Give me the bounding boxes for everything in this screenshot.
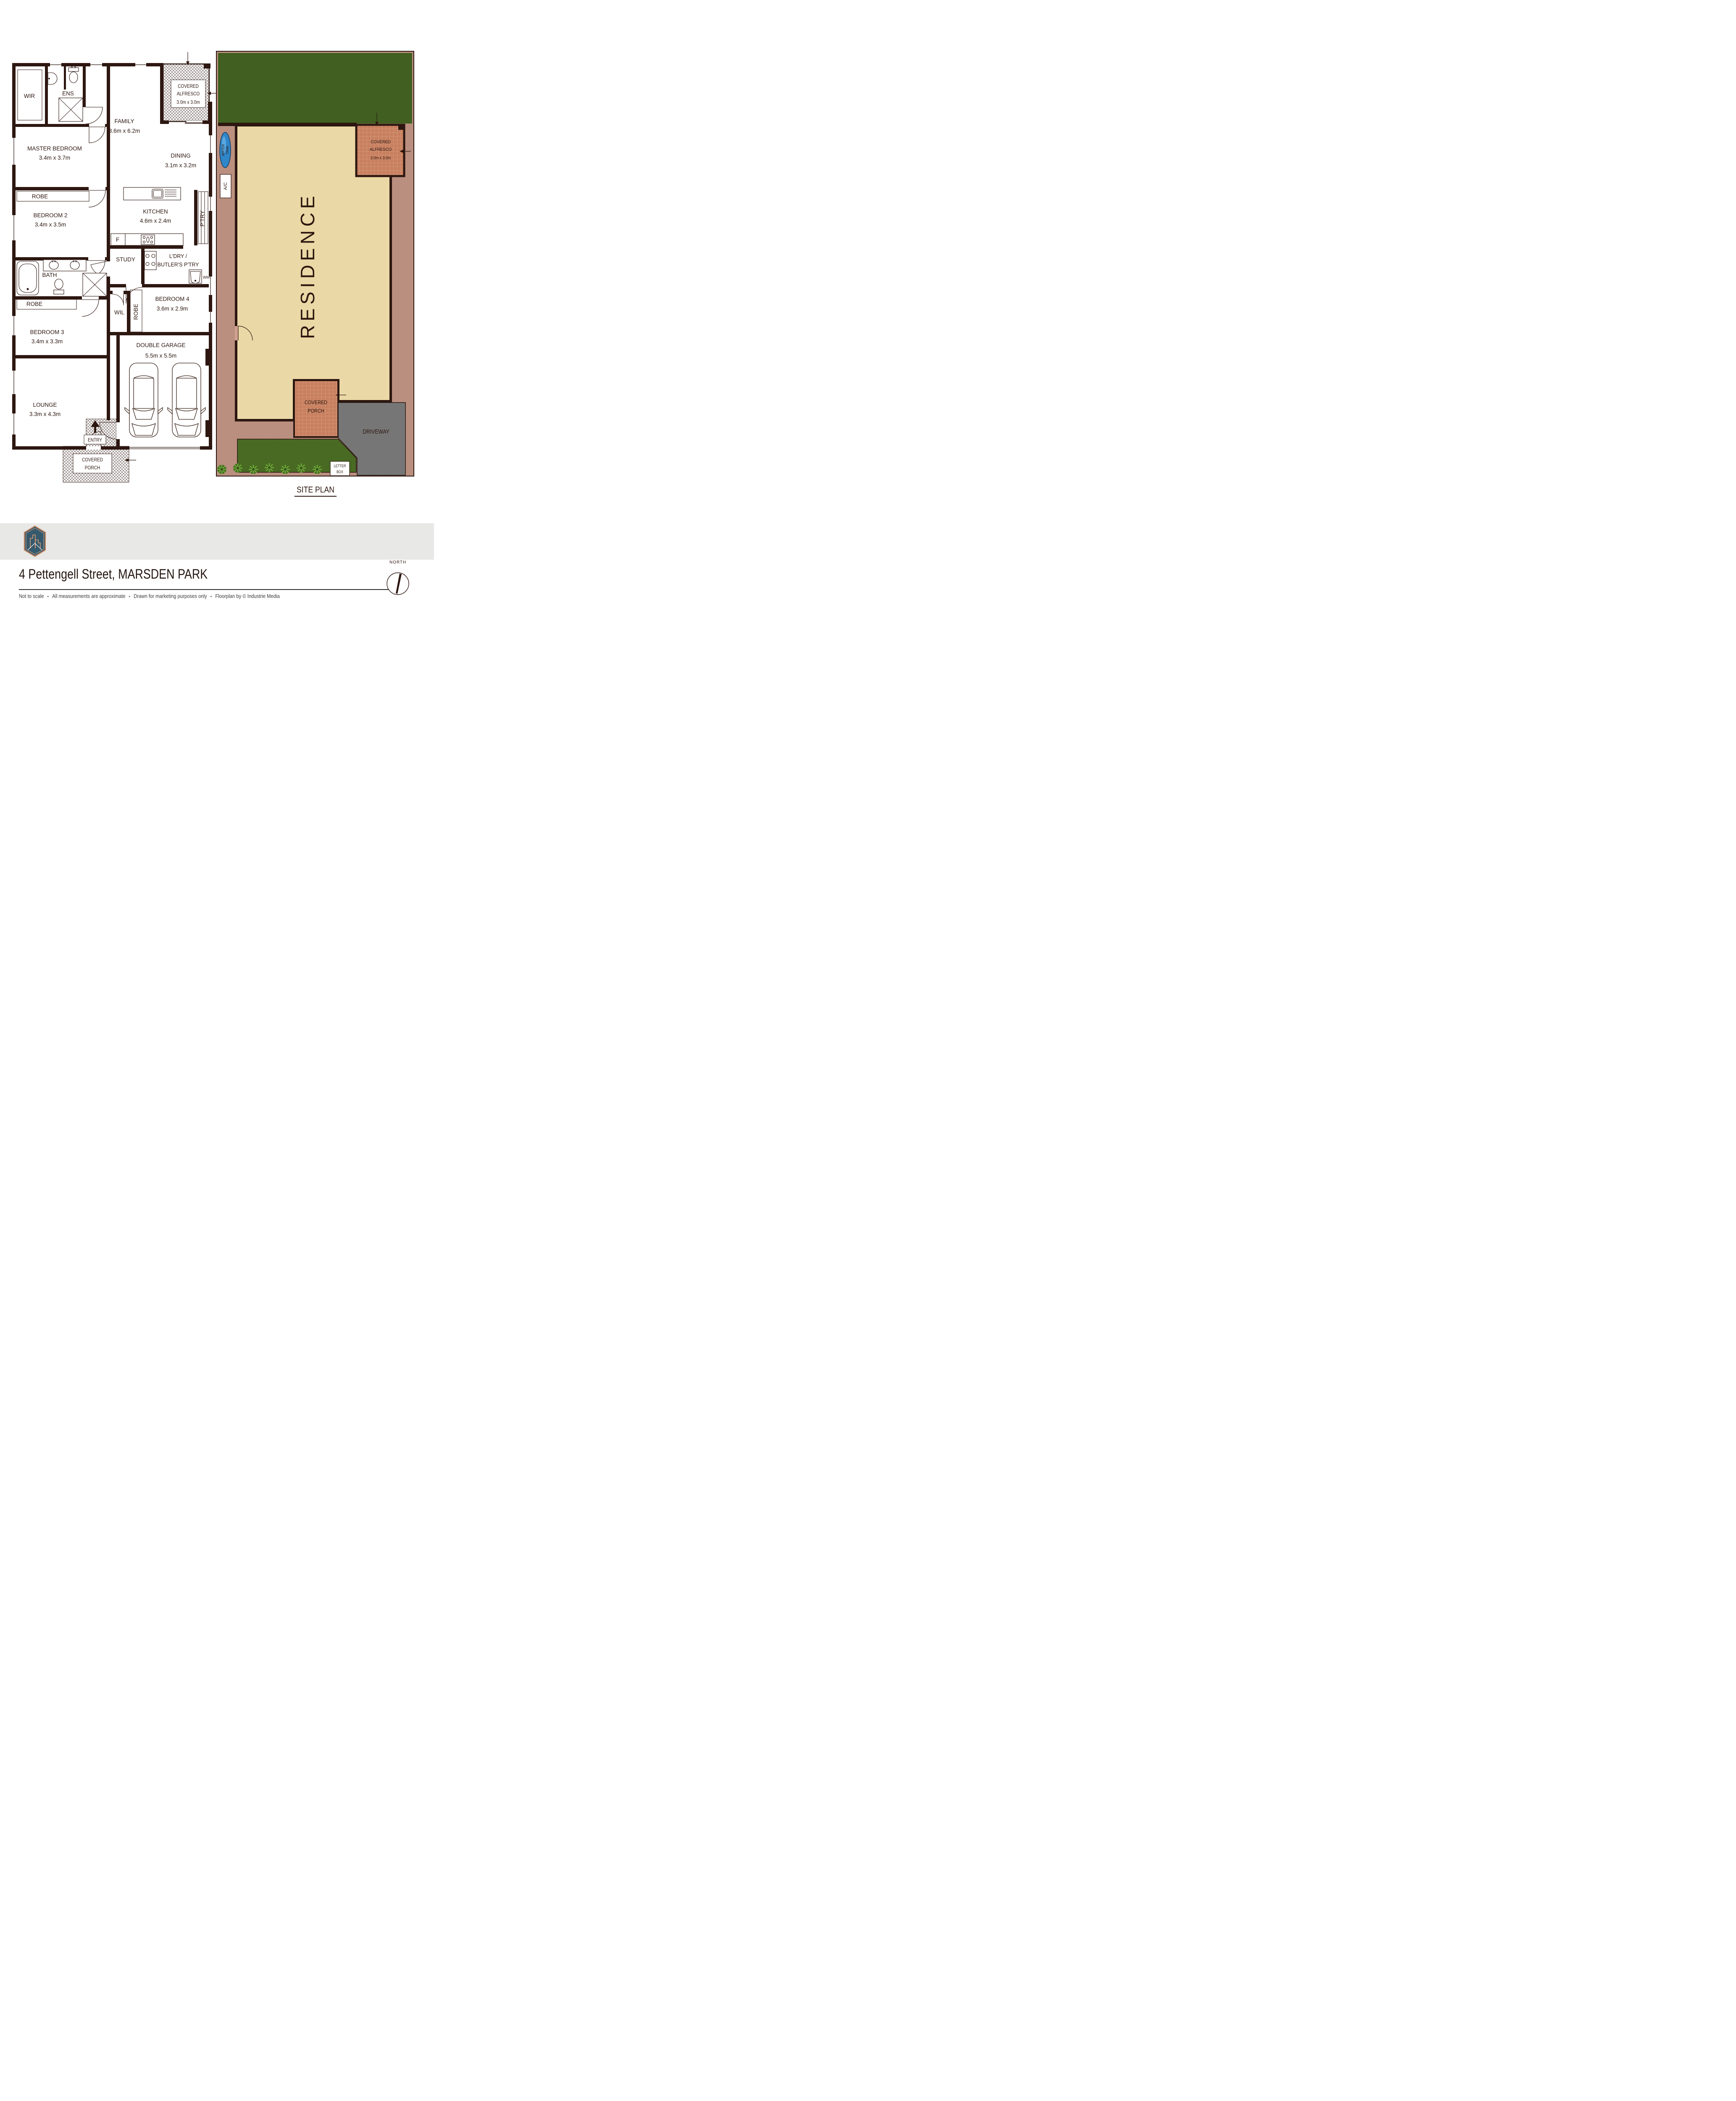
oven-icon — [145, 251, 156, 270]
fp-porch-l2: PORCH — [85, 465, 100, 471]
robe2-closet — [17, 298, 76, 309]
kitchen-fixtures — [111, 187, 202, 283]
room-label-laundry1: L'DRY / — [169, 253, 187, 259]
bath-fixtures — [17, 260, 107, 296]
disclaimer-item: Not to scale — [19, 593, 44, 599]
bullet-separator: • — [210, 594, 212, 599]
property-address: 4 Pettengell Street, MARSDEN PARK — [19, 566, 208, 582]
washing-machine-icon — [189, 270, 202, 283]
north-compass: NORTH — [378, 557, 420, 609]
room-dims-garage: 5.5m x 5.5m — [145, 353, 176, 359]
room-label-robe3: ROBE — [133, 304, 139, 320]
alfresco-entry-arrow — [186, 52, 189, 65]
water-tank-label-1: WATER — [221, 144, 225, 156]
fp-porch-l1: COVERED — [82, 457, 103, 463]
room-dims-dining: 3.1m x 3.2m — [165, 162, 196, 169]
bullet-separator: • — [47, 594, 49, 599]
room-label-robe1: ROBE — [32, 193, 48, 200]
divider-rule — [19, 589, 397, 590]
room-label-family: FAMILY — [114, 118, 134, 124]
ac-label: A/C — [223, 182, 228, 190]
letterbox: LETTER BOX — [330, 461, 350, 476]
toilet-icon — [68, 67, 79, 83]
room-dims-family: 3.6m x 6.2m — [109, 128, 140, 134]
room-dims-bedroom2: 3.4m x 3.5m — [35, 221, 66, 228]
residence-door-gap — [235, 326, 238, 340]
floor-plan: WIR ENS MASTER BEDROOM 3.4m x 3.7m FAMIL… — [12, 52, 218, 482]
disclaimer-item: Drawn for marketing purposes only — [134, 593, 207, 599]
room-dims-master: 3.4m x 3.7m — [39, 155, 70, 161]
water-tank-label-2: TANK — [226, 145, 229, 154]
room-dims-kitchen: 4.6m x 2.4m — [140, 218, 171, 224]
room-label-lounge: LOUNGE — [33, 402, 57, 408]
disclaimer-text: Not to scale•All measurements are approx… — [19, 593, 280, 599]
room-label-study: STUDY — [116, 256, 135, 263]
label-fridge: F — [116, 237, 119, 243]
site-plan: WATER TANK A/C LETTER BOX — [216, 51, 414, 476]
shower-icon — [83, 273, 107, 296]
plans-canvas: WIR ENS MASTER BEDROOM 3.4m x 3.7m FAMIL… — [0, 0, 434, 523]
brand-logo — [22, 525, 48, 558]
car-icon — [168, 363, 205, 437]
room-dims-bedroom4: 3.6m x 2.9m — [157, 305, 188, 312]
letterbox-l1: LETTER — [334, 463, 346, 468]
site-alfresco-dims: 3.0m x 3.0m — [371, 155, 391, 161]
disclaimer-item: Floorplan by © Industrie Media — [215, 593, 279, 599]
site-plan-title: SITE PLAN — [295, 485, 337, 497]
room-label-dining: DINING — [171, 153, 190, 159]
room-label-wir: WIR — [24, 93, 35, 99]
site-alfresco-l2: ALFRESCO — [370, 147, 392, 152]
room-label-laundry2: BUTLER'S P'TRY — [157, 262, 199, 268]
room-dims-bedroom3: 3.4m x 3.3m — [32, 338, 63, 345]
room-dims-lounge: 3.3m x 4.3m — [29, 411, 60, 417]
cooktop-icon — [141, 235, 155, 245]
room-label-ptry: P'TRY — [199, 211, 205, 226]
room-label-master: MASTER BEDROOM — [27, 145, 82, 152]
label-wm: WM — [203, 275, 210, 279]
floorplan-page: WIR ENS MASTER BEDROOM 3.4m x 3.7m FAMIL… — [0, 0, 434, 614]
robe1-closet — [17, 191, 89, 201]
disclaimer-item: All measurements are approximate — [52, 593, 125, 599]
room-label-bath: BATH — [42, 272, 57, 278]
logo-hexagon — [24, 526, 45, 556]
basin-icon — [48, 73, 57, 84]
site-driveway-label: DRIVEWAY — [363, 428, 389, 435]
ac-unit: A/C — [220, 174, 231, 198]
residence-label: RESIDENCE — [297, 192, 318, 339]
fp-alfresco-dims: 3.0m x 3.0m — [176, 100, 200, 105]
room-label-bedroom2: BEDROOM 2 — [33, 212, 67, 219]
water-tank: WATER TANK — [220, 132, 231, 168]
back-lawn-texture — [218, 53, 412, 124]
back-fence-wall — [218, 123, 357, 126]
site-porch-l2: PORCH — [308, 408, 324, 414]
site-porch-l1: COVERED — [305, 399, 327, 405]
room-label-robe2: ROBE — [26, 301, 42, 307]
room-label-bedroom4: BEDROOM 4 — [155, 296, 189, 302]
toilet-icon — [54, 279, 64, 294]
room-label-bedroom3: BEDROOM 3 — [30, 329, 64, 335]
north-label: NORTH — [389, 560, 406, 565]
site-alfresco-l1: COVERED — [371, 139, 391, 145]
shower-icon — [59, 98, 83, 121]
fp-alfresco-l2: ALFRESCO — [177, 91, 200, 97]
fp-alfresco-l1: COVERED — [178, 84, 199, 89]
room-label-ens: ENS — [62, 90, 74, 97]
room-label-wil: WIL — [114, 309, 124, 316]
fp-entry-label: ENTRY — [88, 437, 103, 443]
bathtub-icon — [17, 261, 39, 295]
room-label-garage: DOUBLE GARAGE — [136, 342, 185, 348]
brand-band: PARAS & BAZ — [0, 523, 434, 560]
car-icon — [125, 363, 163, 437]
bullet-separator: • — [129, 594, 130, 599]
room-label-kitchen: KITCHEN — [143, 208, 168, 215]
letterbox-l2: BOX — [337, 469, 343, 474]
double-basin-icon — [43, 260, 86, 271]
